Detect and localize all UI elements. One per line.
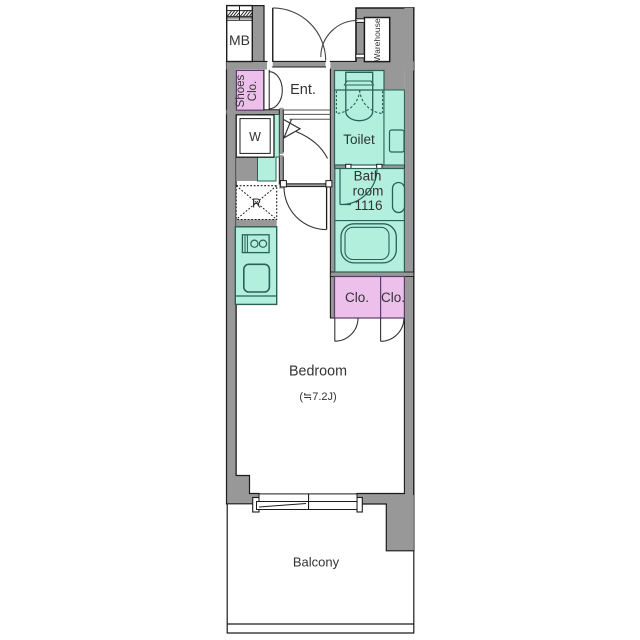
svg-text:room: room: [353, 183, 384, 198]
svg-text:1116: 1116: [354, 198, 382, 213]
svg-text:Clo.: Clo.: [247, 81, 259, 101]
svg-text:Warehouse: Warehouse: [372, 18, 382, 61]
svg-text:(≒7.2J): (≒7.2J): [299, 391, 336, 403]
svg-text:Toilet: Toilet: [343, 132, 375, 147]
svg-text:R: R: [252, 197, 261, 211]
svg-text:Ent.: Ent.: [290, 82, 316, 98]
svg-text:Clo.: Clo.: [345, 290, 369, 305]
svg-text:Clo.: Clo.: [381, 290, 405, 305]
svg-text:Bedroom: Bedroom: [289, 364, 347, 380]
svg-text:Bath: Bath: [354, 169, 382, 184]
svg-text:Shoes: Shoes: [235, 74, 247, 107]
svg-text:Balcony: Balcony: [293, 555, 340, 570]
svg-text:W: W: [249, 130, 261, 144]
svg-text:MB: MB: [229, 32, 250, 48]
